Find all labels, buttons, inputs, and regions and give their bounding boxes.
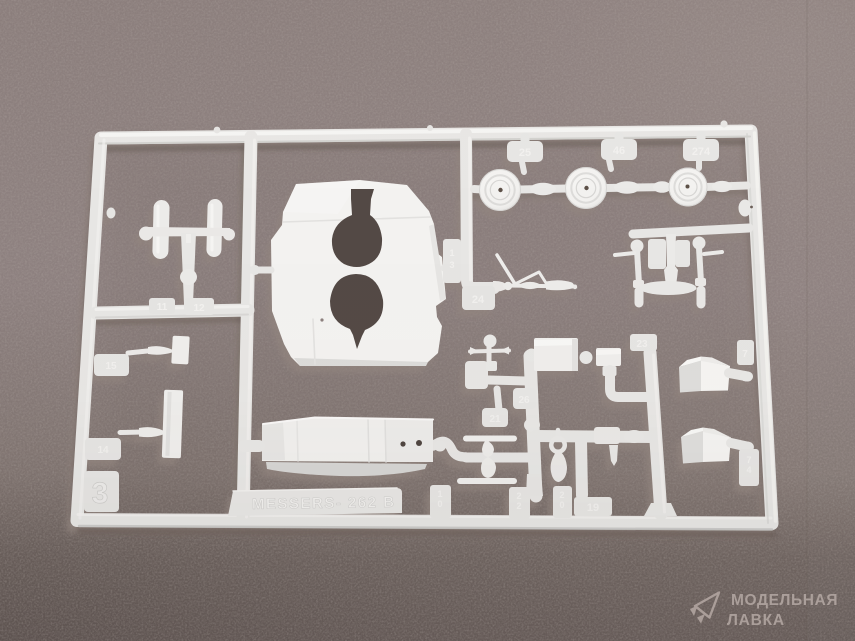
svg-text:ЛАВКА: ЛАВКА (727, 612, 785, 629)
svg-text:МОДЕЛЬНАЯ: МОДЕЛЬНАЯ (731, 592, 838, 609)
